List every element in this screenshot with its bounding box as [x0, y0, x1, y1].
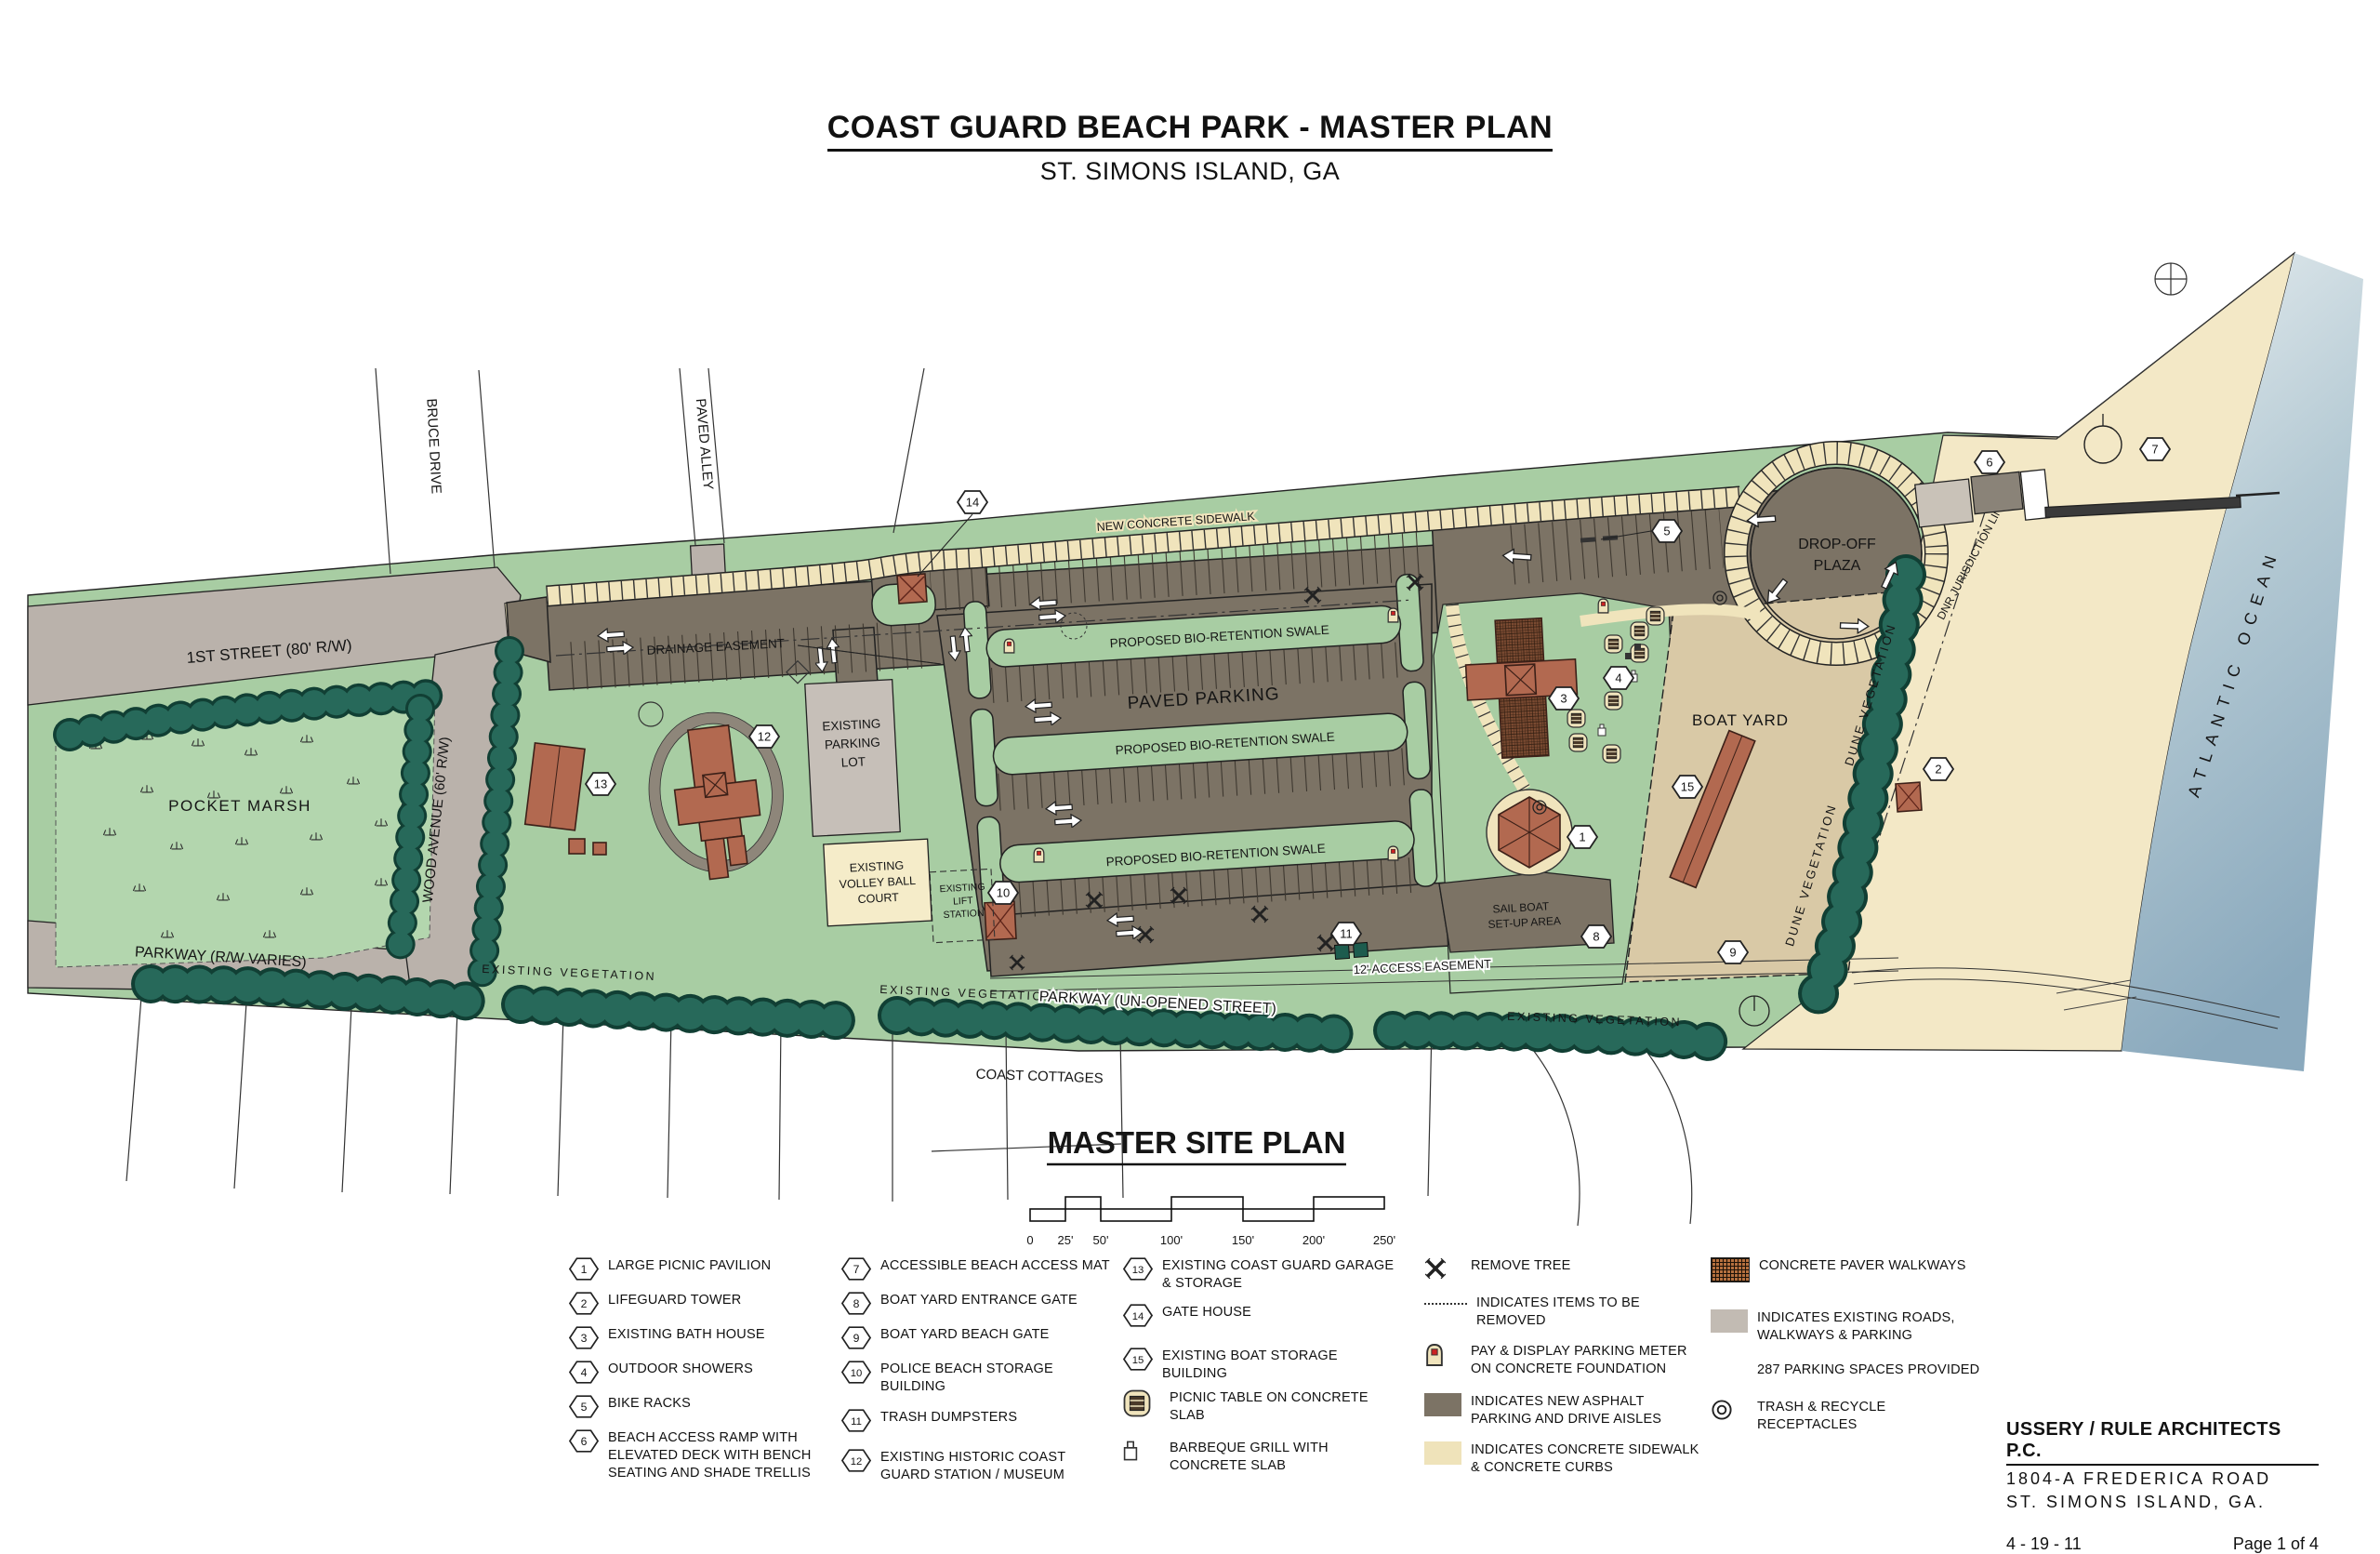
- svg-text:3: 3: [581, 1332, 588, 1345]
- hex-9-icon: 9: [841, 1326, 871, 1349]
- architect-firm: USSERY / RULE ARCHITECTS P.C.: [2006, 1419, 2319, 1466]
- svg-text:15: 15: [1132, 1355, 1144, 1366]
- legend-item-10: 10POLICE BEACH STORAGE BUILDING: [841, 1361, 1053, 1396]
- legend-item-asphalt: INDICATES NEW ASPHALT PARKING AND DRIVE …: [1424, 1393, 1661, 1428]
- svg-text:LOT: LOT: [840, 754, 866, 769]
- svg-text:50': 50': [1093, 1233, 1109, 1247]
- legend-item-trash: TRASH & RECYCLE RECEPTACLES: [1711, 1399, 1885, 1434]
- legend-item-1: 1LARGE PICNIC PAVILION: [569, 1257, 771, 1281]
- hex-12-icon: 12: [841, 1449, 871, 1472]
- hex-5-icon: 5: [569, 1395, 599, 1418]
- remove-tree-x-icon: [1424, 1257, 1447, 1280]
- svg-text:8: 8: [1593, 930, 1599, 944]
- legend-item-6: 6BEACH ACCESS RAMP WITH ELEVATED DECK WI…: [569, 1429, 812, 1482]
- hex-10-icon: 10: [841, 1361, 871, 1384]
- svg-text:13: 13: [1132, 1265, 1144, 1276]
- svg-text:10: 10: [997, 886, 1010, 900]
- svg-text:4: 4: [581, 1366, 588, 1379]
- hex-15-icon: 15: [1123, 1348, 1153, 1371]
- pocket-marsh-label: POCKET MARSH: [168, 797, 311, 815]
- site-plan-title-block: MASTER SITE PLAN 0 25' 50' 100' 150' 200…: [1026, 1125, 1395, 1247]
- legend-item-existing-roads: INDICATES EXISTING ROADS, WALKWAYS & PAR…: [1711, 1309, 1955, 1345]
- hex-2-icon: 2: [569, 1292, 599, 1315]
- scale-tick-labels: 0 25' 50' 100' 150' 200' 250': [1026, 1233, 1395, 1247]
- svg-text:14: 14: [966, 496, 979, 510]
- svg-text:9: 9: [853, 1332, 860, 1345]
- svg-text:3: 3: [1560, 692, 1567, 706]
- svg-text:6: 6: [581, 1435, 588, 1448]
- svg-text:2: 2: [581, 1297, 588, 1310]
- hex-4-icon: 4: [569, 1361, 599, 1384]
- svg-text:10: 10: [851, 1368, 863, 1379]
- svg-text:0: 0: [1026, 1233, 1033, 1247]
- legend-item-12: 12EXISTING HISTORIC COAST GUARD STATION …: [841, 1449, 1065, 1484]
- legend-item-14: 14GATE HOUSE: [1123, 1304, 1251, 1327]
- svg-text:12: 12: [758, 730, 771, 744]
- svg-text:COAST COTTAGES: COAST COTTAGES: [975, 1067, 1103, 1087]
- svg-text:12: 12: [851, 1456, 863, 1468]
- hex-7-icon: 7: [841, 1257, 871, 1281]
- hex-6-icon: 6: [569, 1429, 599, 1453]
- svg-text:PARKING: PARKING: [825, 735, 880, 751]
- svg-text:4: 4: [1615, 671, 1621, 685]
- svg-text:COURT: COURT: [857, 891, 899, 906]
- legend-item-parking-count: 287 PARKING SPACES PROVIDED: [1711, 1361, 1979, 1379]
- legend-item-8: 8BOAT YARD ENTRANCE GATE: [841, 1292, 1078, 1315]
- legend-item-2: 2LIFEGUARD TOWER: [569, 1292, 741, 1315]
- police-storage-10: [985, 901, 1016, 940]
- svg-text:11: 11: [1340, 927, 1353, 941]
- legend-item-remove-tree: REMOVE TREE: [1424, 1257, 1570, 1280]
- architect-address-line2: ST. SIMONS ISLAND, GA.: [2006, 1493, 2319, 1512]
- scale-bar: [1030, 1197, 1384, 1221]
- legend-item-paver: CONCRETE PAVER WALKWAYS: [1711, 1257, 1966, 1282]
- svg-text:150': 150': [1232, 1233, 1254, 1247]
- volleyball-court: EXISTING VOLLEY BALL COURT: [824, 839, 932, 926]
- svg-text:1: 1: [581, 1263, 588, 1276]
- svg-text:DROP-OFF: DROP-OFF: [1798, 537, 1876, 552]
- parking-meter-icon: [1424, 1343, 1445, 1367]
- svg-text:14: 14: [1132, 1311, 1144, 1322]
- paver-swatch-icon: [1711, 1257, 1750, 1282]
- hex-11-icon: 11: [841, 1409, 871, 1432]
- boat-yard-label: BOAT YARD: [1692, 711, 1789, 729]
- svg-text:EXISTING: EXISTING: [939, 882, 985, 896]
- gate-house-14: [897, 574, 927, 604]
- legend-item-5: 5BIKE RACKS: [569, 1395, 691, 1418]
- hex-1-icon: 1: [569, 1257, 599, 1281]
- hex-13-icon: 13: [1123, 1257, 1153, 1281]
- picnic-table-icon: [1123, 1389, 1151, 1417]
- legend-item-picnic-table: PICNIC TABLE ON CONCRETE SLAB: [1123, 1389, 1368, 1425]
- hex-14-icon: 14: [1123, 1304, 1153, 1327]
- hex-3-icon: 3: [569, 1326, 599, 1349]
- hex-8-icon: 8: [841, 1292, 871, 1315]
- picnic-pavilion-1: [1487, 790, 1572, 875]
- legend-item-sidewalk: INDICATES CONCRETE SIDEWALK & CONCRETE C…: [1424, 1441, 1699, 1477]
- legend-item-barbeque: BARBEQUE GRILL WITH CONCRETE SLAB: [1123, 1440, 1329, 1475]
- svg-text:STATION: STATION: [943, 908, 985, 921]
- page-number: Page 1 of 4: [2233, 1534, 2319, 1554]
- svg-text:5: 5: [1663, 525, 1670, 538]
- svg-text:7: 7: [2151, 443, 2158, 457]
- svg-text:11: 11: [851, 1416, 862, 1428]
- legend-item-4: 4OUTDOOR SHOWERS: [569, 1361, 753, 1384]
- svg-text:25': 25': [1058, 1233, 1074, 1247]
- svg-text:BRUCE DRIVE: BRUCE DRIVE: [423, 398, 443, 494]
- architect-address-line1: 1804-A FREDERICA ROAD: [2006, 1469, 2319, 1489]
- dotted-line-icon: [1424, 1303, 1467, 1305]
- lifeguard-tower-2: [1896, 782, 1922, 812]
- svg-text:250': 250': [1373, 1233, 1395, 1247]
- svg-text:PLAZA: PLAZA: [1814, 558, 1861, 574]
- existing-road-swatch-icon: [1711, 1309, 1748, 1333]
- legend-item-removed: INDICATES ITEMS TO BE REMOVED: [1424, 1295, 1640, 1330]
- svg-text:100': 100': [1160, 1233, 1183, 1247]
- asphalt-swatch-icon: [1424, 1393, 1461, 1416]
- legend-item-11: 11TRASH DUMPSTERS: [841, 1409, 1017, 1432]
- site-plan-title: MASTER SITE PLAN: [1048, 1125, 1346, 1160]
- trash-recycle-icon: [1711, 1399, 1733, 1421]
- svg-text:1: 1: [1579, 830, 1585, 844]
- svg-text:5: 5: [581, 1401, 588, 1414]
- concrete-swatch-icon: [1424, 1441, 1461, 1465]
- legend-item-13: 13EXISTING COAST GUARD GARAGE & STORAGE: [1123, 1257, 1394, 1293]
- svg-text:2: 2: [1935, 763, 1941, 777]
- svg-text:15: 15: [1681, 780, 1694, 794]
- svg-text:7: 7: [853, 1263, 860, 1276]
- svg-text:9: 9: [1729, 946, 1736, 960]
- architect-title-block: USSERY / RULE ARCHITECTS P.C. 1804-A FRE…: [2006, 1419, 2319, 1554]
- legend-item-9: 9BOAT YARD BEACH GATE: [841, 1326, 1050, 1349]
- svg-text:200': 200': [1302, 1233, 1325, 1247]
- legend-item-15: 15EXISTING BOAT STORAGE BUILDING: [1123, 1348, 1338, 1383]
- legend-item-meter: PAY & DISPLAY PARKING METER ON CONCRETE …: [1424, 1343, 1687, 1378]
- legend-item-3: 3EXISTING BATH HOUSE: [569, 1326, 765, 1349]
- svg-text:8: 8: [853, 1297, 860, 1310]
- svg-text:6: 6: [1986, 456, 1992, 470]
- svg-text:13: 13: [594, 777, 607, 791]
- barbeque-grill-icon: [1123, 1440, 1138, 1462]
- svg-text:LIFT: LIFT: [953, 895, 974, 907]
- coast-guard-garage-13: [525, 743, 585, 830]
- drawing-date: 4 - 19 - 11: [2006, 1534, 2082, 1554]
- legend-item-7: 7ACCESSIBLE BEACH ACCESS MAT: [841, 1257, 1110, 1281]
